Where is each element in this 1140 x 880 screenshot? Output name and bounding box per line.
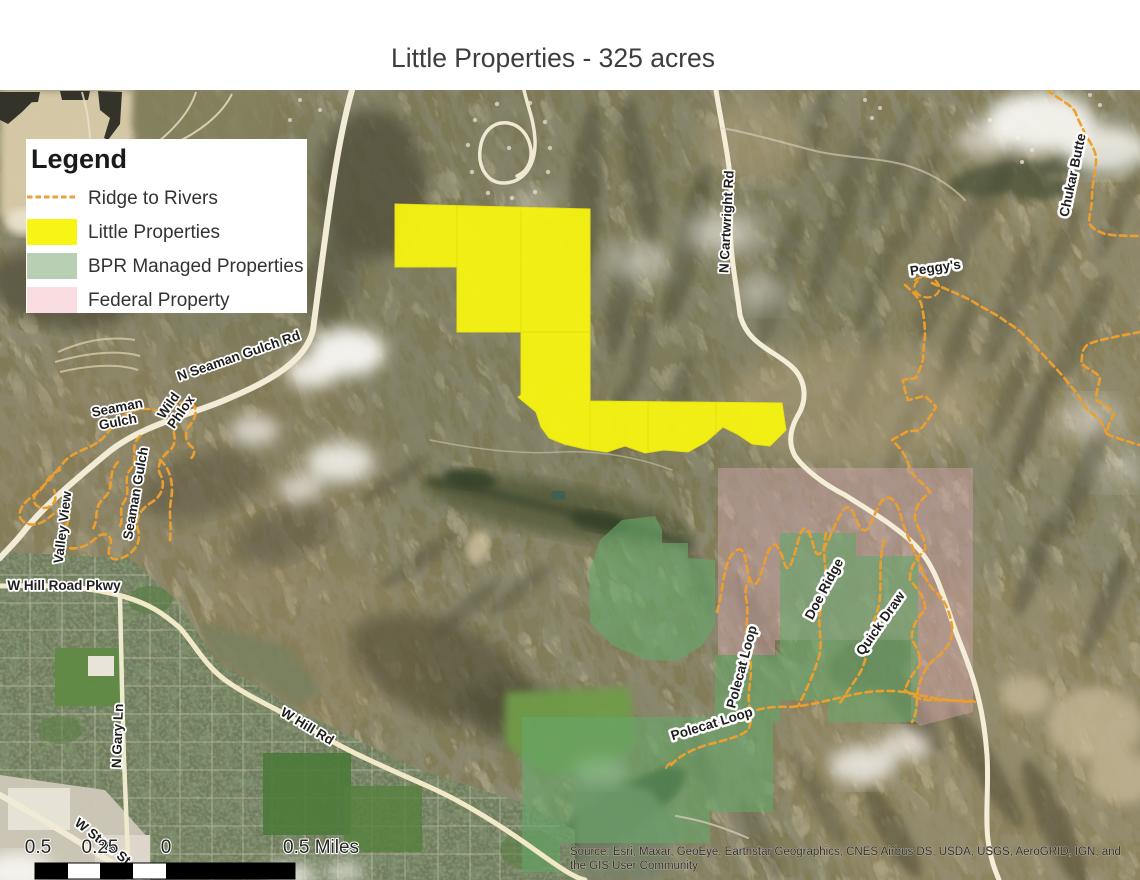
svg-text:Source: Esri, Maxar, GeoEye, E: Source: Esri, Maxar, GeoEye, Earthstar G… [570,846,1121,858]
svg-text:W Hill Road Pkwy: W Hill Road Pkwy [7,578,121,593]
svg-text:N Gary Ln: N Gary Ln [109,703,126,768]
svg-text:0: 0 [161,837,172,858]
svg-text:Little Properties: Little Properties [88,222,220,243]
svg-text:BPR Managed Properties: BPR Managed Properties [88,256,303,277]
svg-text:Federal Property: Federal Property [88,290,230,311]
svg-text:0.5 Miles: 0.5 Miles [283,837,359,858]
svg-text:Ridge to Rivers: Ridge to Rivers [88,188,218,209]
svg-text:0.25: 0.25 [82,837,119,858]
svg-text:Legend: Legend [31,144,127,174]
svg-text:0.5: 0.5 [25,837,51,858]
svg-text:the GIS User Community: the GIS User Community [570,860,698,872]
